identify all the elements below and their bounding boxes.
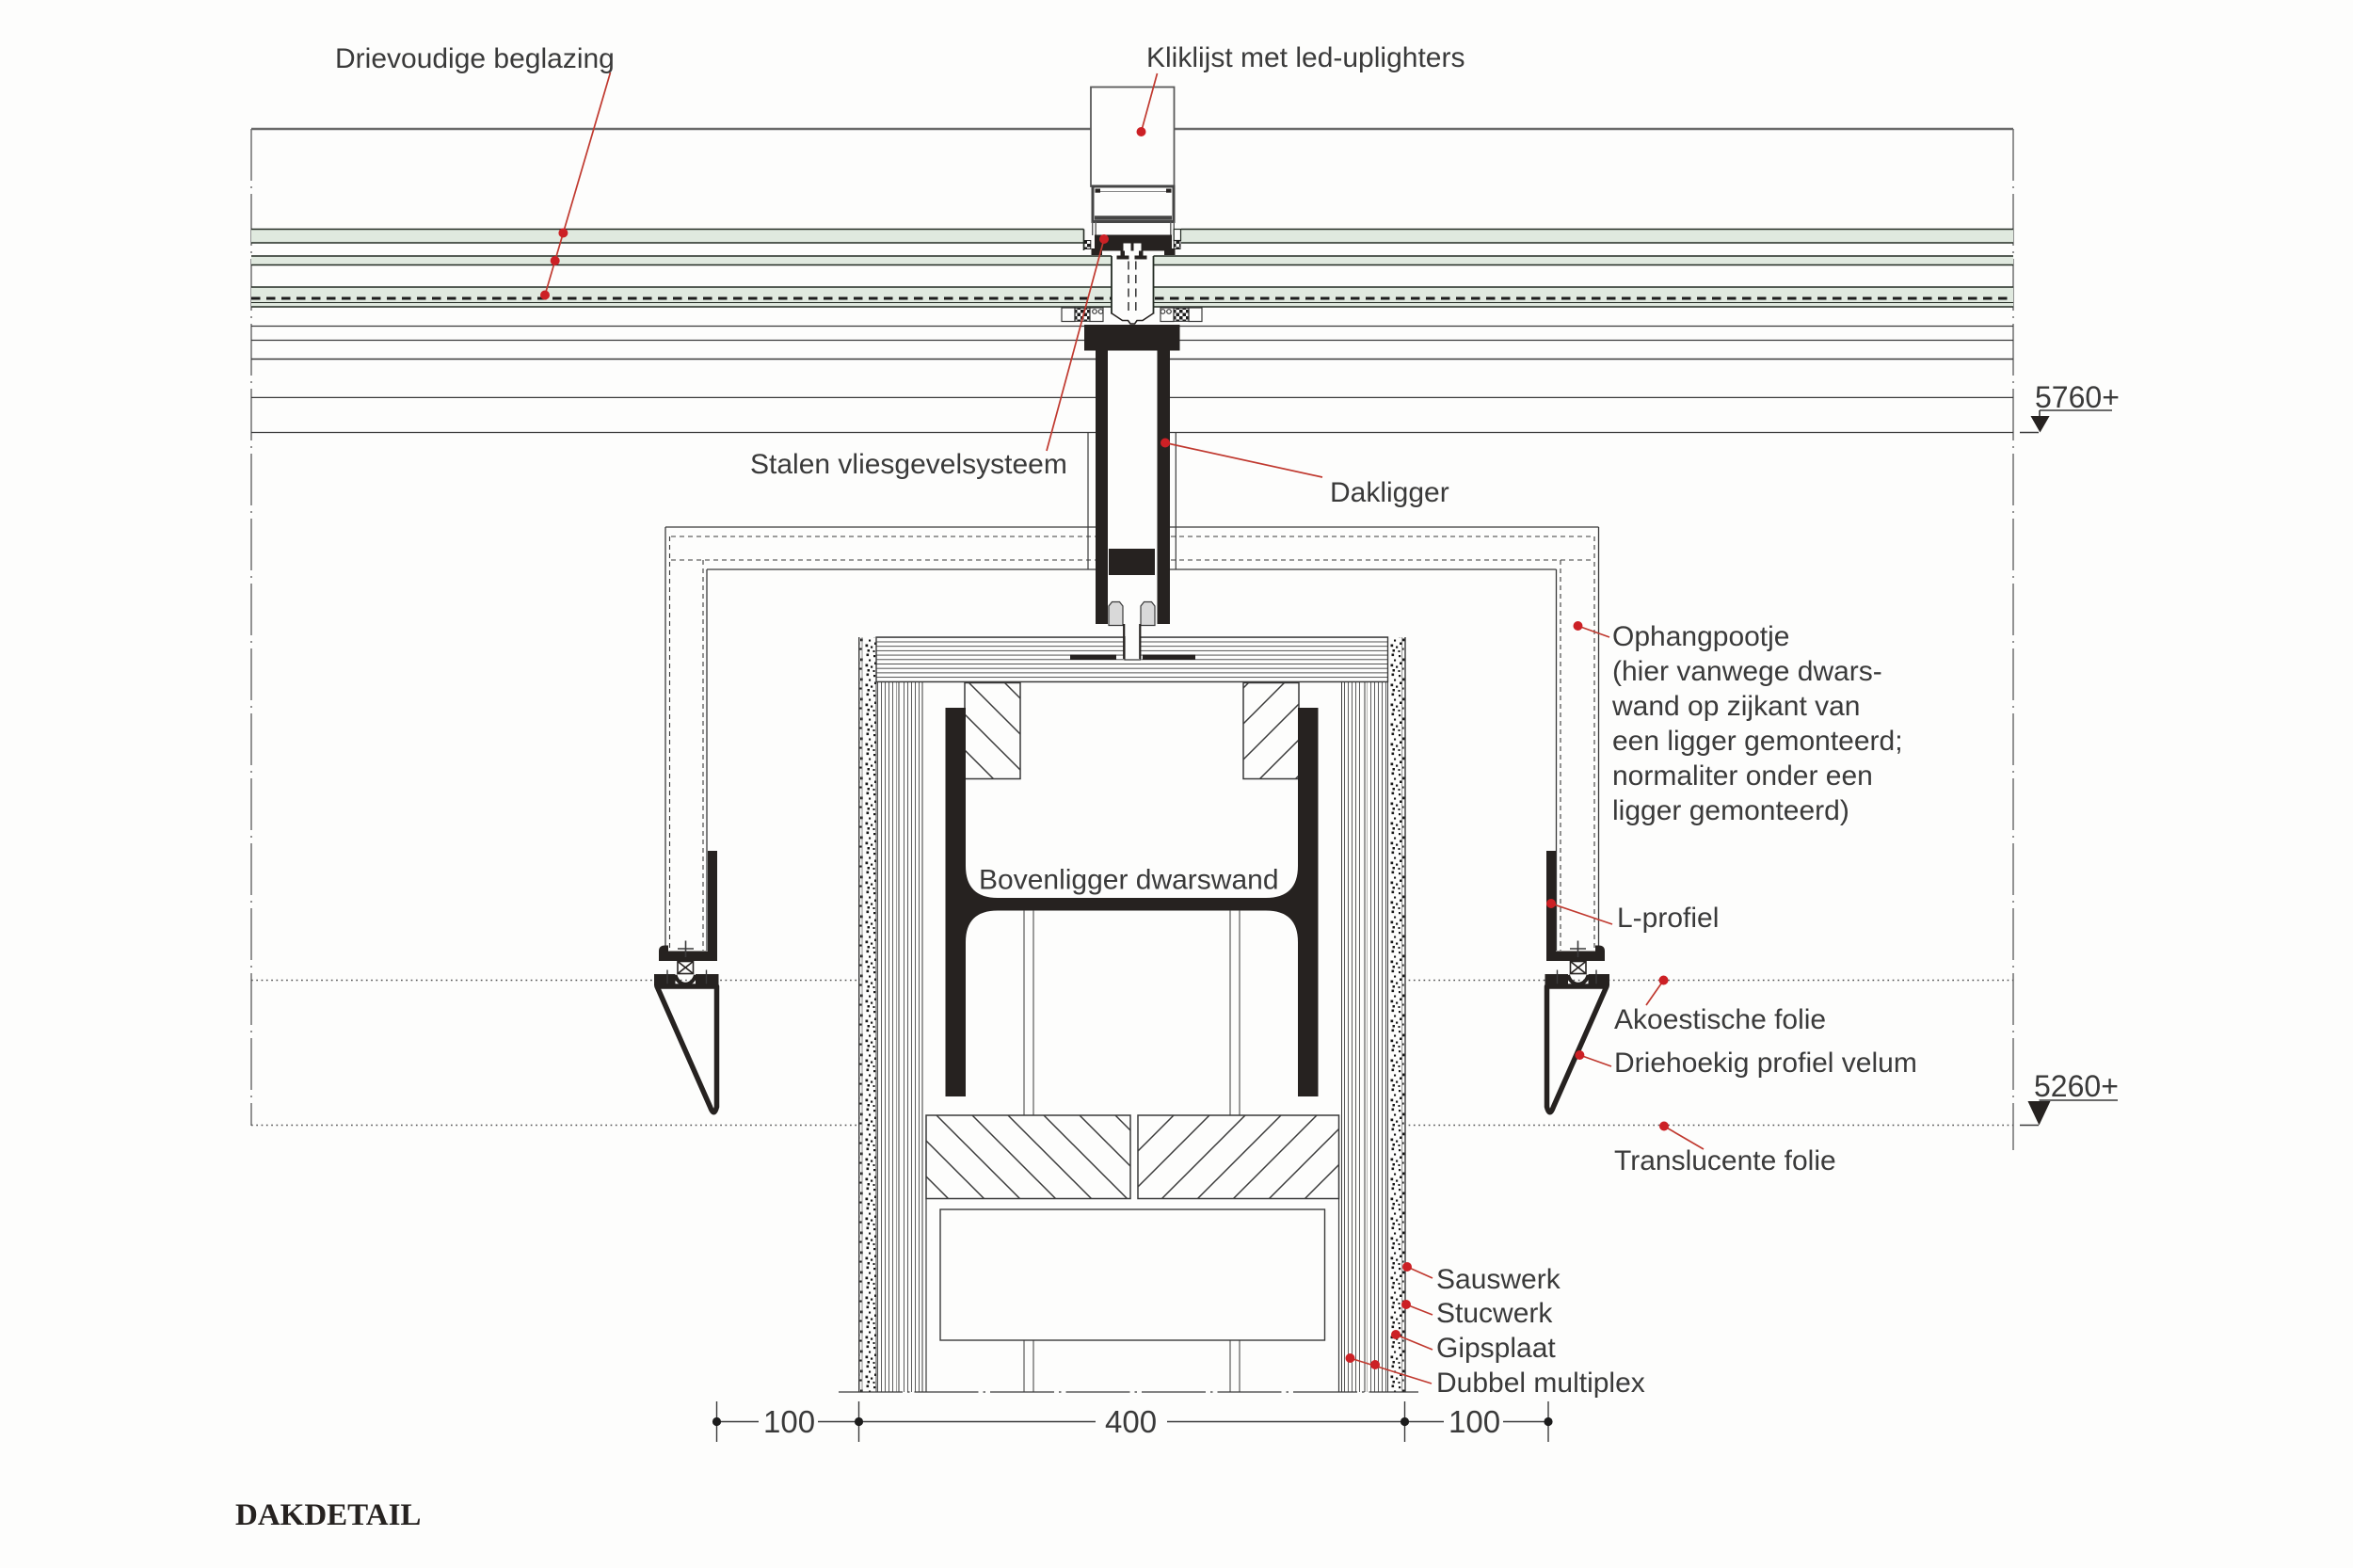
svg-text:Ophangpootje: Ophangpootje: [1612, 621, 1790, 652]
svg-text:Akoestische folie: Akoestische folie: [1614, 1004, 1826, 1035]
svg-text:Stalen vliesgevelsysteem: Stalen vliesgevelsysteem: [750, 449, 1067, 480]
svg-text:ligger gemonteerd): ligger gemonteerd): [1612, 795, 1849, 826]
svg-text:Bovenligger dwarswand: Bovenligger dwarswand: [979, 865, 1279, 896]
svg-text:5260+: 5260+: [2034, 1069, 2119, 1103]
svg-text:L-profiel: L-profiel: [1617, 903, 1719, 934]
svg-text:100: 100: [1449, 1404, 1500, 1439]
svg-text:Sauswerk: Sauswerk: [1436, 1264, 1561, 1295]
svg-text:Stucwerk: Stucwerk: [1436, 1298, 1553, 1329]
svg-text:wand op zijkant van: wand op zijkant van: [1611, 691, 1861, 722]
svg-text:Dubbel multiplex: Dubbel multiplex: [1436, 1368, 1645, 1399]
svg-text:400: 400: [1105, 1404, 1157, 1439]
svg-text:Translucente folie: Translucente folie: [1614, 1145, 1836, 1176]
svg-text:een ligger gemonteerd;: een ligger gemonteerd;: [1612, 726, 1903, 757]
svg-text:normaliter onder een: normaliter onder een: [1612, 760, 1873, 792]
svg-text:Gipsplaat: Gipsplaat: [1436, 1333, 1556, 1364]
svg-text:DAKDETAIL: DAKDETAIL: [235, 1498, 421, 1532]
svg-text:Kliklijst met led-uplighters: Kliklijst met led-uplighters: [1146, 42, 1465, 73]
svg-text:5760+: 5760+: [2035, 380, 2120, 414]
svg-text:100: 100: [763, 1404, 815, 1439]
svg-text:Driehoekig profiel velum: Driehoekig profiel velum: [1614, 1048, 1917, 1079]
svg-text:Drievoudige beglazing: Drievoudige beglazing: [335, 43, 615, 74]
svg-text:(hier vanwege dwars-: (hier vanwege dwars-: [1612, 656, 1882, 687]
svg-text:Dakligger: Dakligger: [1330, 477, 1449, 508]
